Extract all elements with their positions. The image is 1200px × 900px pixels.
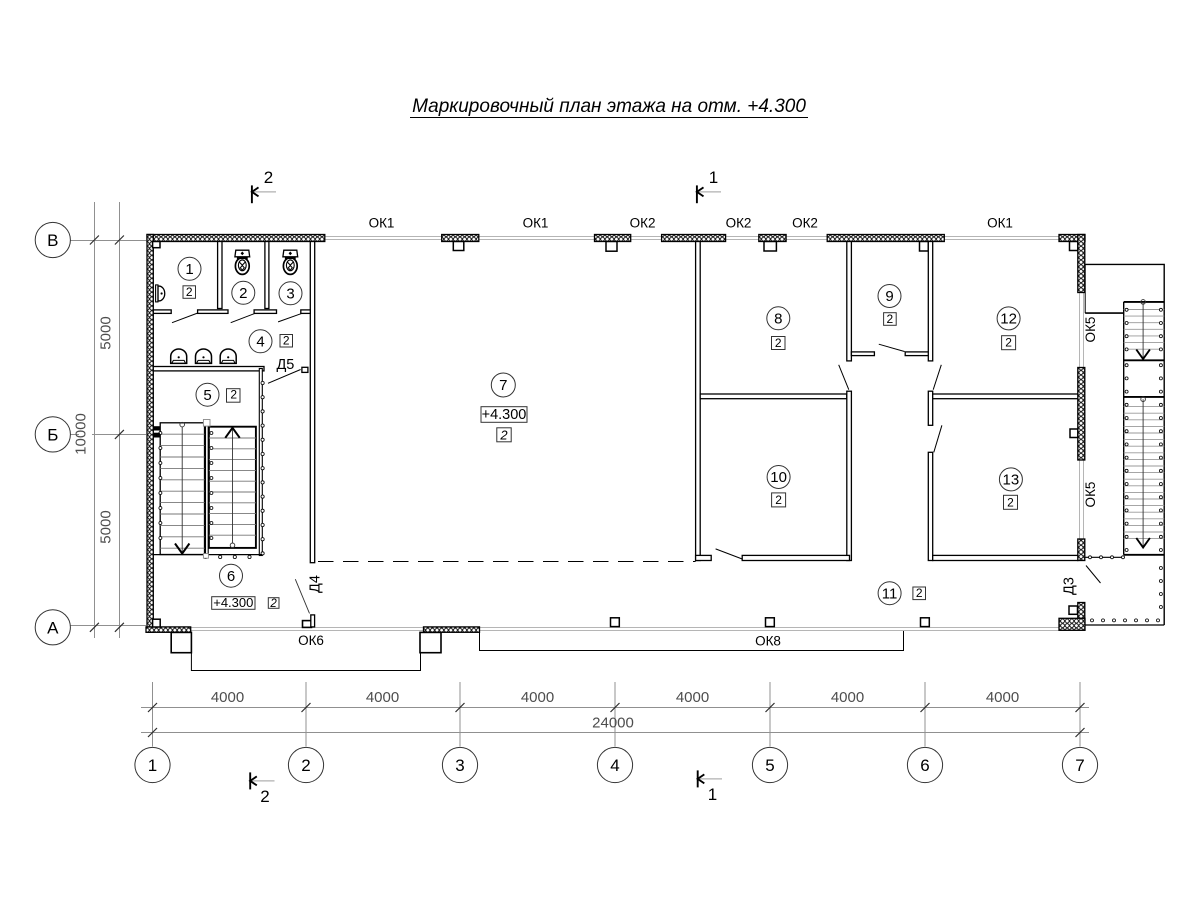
svg-text:ОК6: ОК6 <box>298 633 324 648</box>
svg-text:2: 2 <box>264 168 273 187</box>
svg-text:4000: 4000 <box>676 689 709 706</box>
svg-text:5: 5 <box>765 756 774 775</box>
svg-text:2: 2 <box>499 428 508 443</box>
svg-text:2: 2 <box>283 334 290 348</box>
svg-text:ОК5: ОК5 <box>1083 482 1098 508</box>
svg-text:2: 2 <box>887 312 894 326</box>
svg-text:5000: 5000 <box>98 510 115 543</box>
svg-text:10: 10 <box>770 469 787 486</box>
svg-text:24000: 24000 <box>592 715 634 732</box>
svg-text:5000: 5000 <box>98 316 115 349</box>
svg-text:ОК8: ОК8 <box>755 634 781 649</box>
svg-text:Д4: Д4 <box>308 575 324 593</box>
svg-text:2: 2 <box>260 787 269 806</box>
svg-text:2: 2 <box>775 336 782 350</box>
svg-text:Д3: Д3 <box>1062 577 1078 595</box>
svg-text:2: 2 <box>916 586 923 600</box>
svg-text:10000: 10000 <box>73 413 90 455</box>
svg-text:+4.300: +4.300 <box>482 407 527 423</box>
svg-text:4: 4 <box>256 334 264 351</box>
svg-text:Д5: Д5 <box>276 357 294 373</box>
svg-text:3: 3 <box>286 286 294 303</box>
svg-text:4000: 4000 <box>366 689 399 706</box>
svg-text:1: 1 <box>708 785 717 804</box>
svg-text:2: 2 <box>1005 336 1012 350</box>
svg-text:6: 6 <box>920 756 929 775</box>
svg-text:ОК1: ОК1 <box>987 216 1013 231</box>
svg-text:13: 13 <box>1003 472 1020 489</box>
svg-text:ОК5: ОК5 <box>1083 317 1098 343</box>
svg-text:2: 2 <box>301 756 310 775</box>
svg-text:2: 2 <box>186 285 193 299</box>
svg-text:8: 8 <box>774 311 782 328</box>
svg-text:А: А <box>47 619 59 638</box>
svg-text:ОК2: ОК2 <box>726 216 752 231</box>
svg-text:11: 11 <box>882 585 898 602</box>
svg-text:В: В <box>47 231 58 250</box>
svg-text:5: 5 <box>203 387 211 404</box>
svg-text:4000: 4000 <box>521 689 554 706</box>
svg-text:2: 2 <box>269 598 277 610</box>
svg-text:12: 12 <box>1000 311 1017 328</box>
svg-text:4000: 4000 <box>211 689 244 706</box>
svg-text:4: 4 <box>610 756 619 775</box>
svg-text:9: 9 <box>885 288 893 305</box>
svg-text:ОК1: ОК1 <box>523 216 549 231</box>
svg-text:ОК1: ОК1 <box>369 216 395 231</box>
svg-text:1: 1 <box>709 168 718 187</box>
svg-text:+4.300: +4.300 <box>213 595 253 610</box>
svg-text:2: 2 <box>775 493 782 507</box>
svg-text:7: 7 <box>499 377 507 394</box>
svg-text:ОК2: ОК2 <box>630 216 656 231</box>
svg-text:2: 2 <box>230 387 237 401</box>
svg-text:6: 6 <box>227 568 235 585</box>
svg-text:Маркировочный план этажа на от: Маркировочный план этажа на отм. +4.300 <box>412 96 806 117</box>
svg-text:7: 7 <box>1075 756 1084 775</box>
svg-text:2: 2 <box>1007 495 1014 509</box>
svg-text:ОК2: ОК2 <box>792 216 818 231</box>
svg-text:3: 3 <box>455 756 464 775</box>
svg-text:Б: Б <box>47 426 58 445</box>
svg-text:2: 2 <box>239 285 247 302</box>
svg-text:1: 1 <box>148 756 157 775</box>
svg-text:4000: 4000 <box>831 689 864 706</box>
svg-text:4000: 4000 <box>986 689 1019 706</box>
svg-text:1: 1 <box>185 261 193 278</box>
